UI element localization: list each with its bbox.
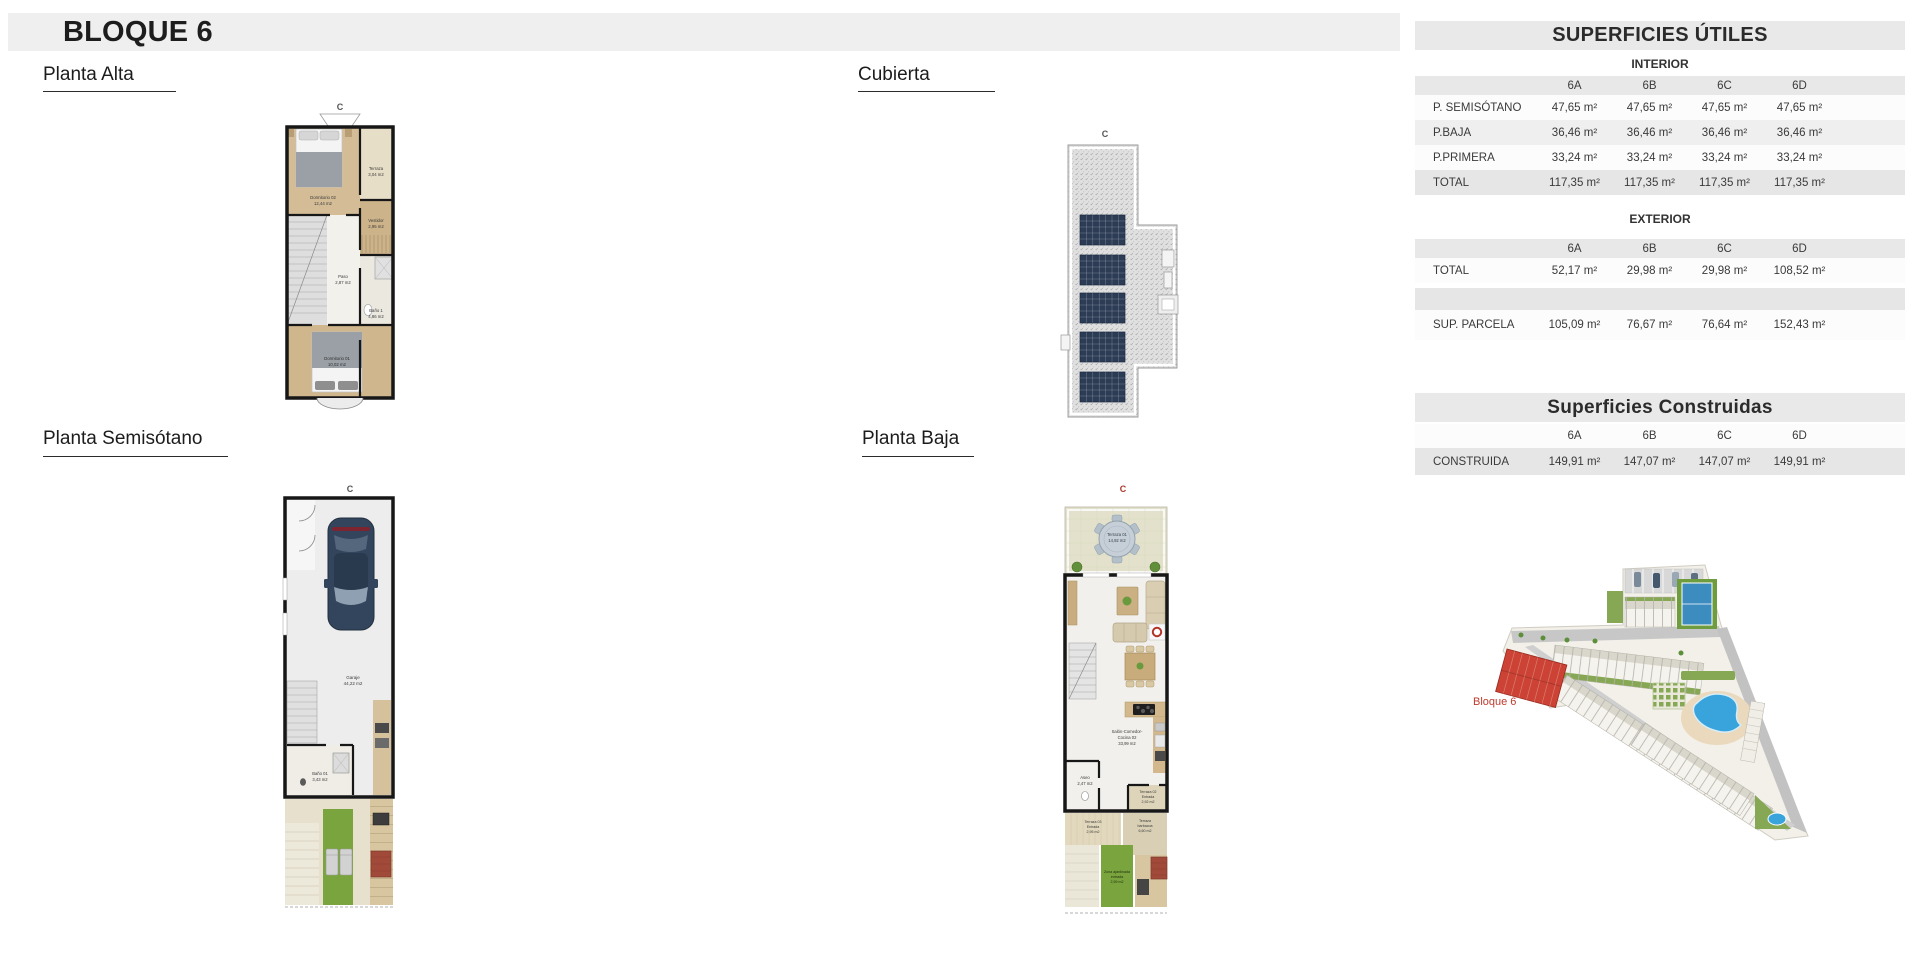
- col-header: 6D: [1762, 430, 1837, 442]
- table-row: P.BAJA 36,46 m² 36,46 m² 36,46 m² 36,46 …: [1415, 120, 1905, 145]
- tree: [1565, 638, 1570, 643]
- room-label: Entrada: [1142, 795, 1155, 799]
- orientation-mark: C: [347, 484, 354, 494]
- cell: 36,46 m²: [1537, 127, 1612, 139]
- cell: 152,43 m²: [1762, 319, 1837, 331]
- grill: [373, 813, 389, 825]
- room-label: Terraza 03: [1085, 820, 1102, 824]
- garden-parterre: [1653, 683, 1685, 709]
- cell: 33,24 m²: [1762, 152, 1837, 164]
- section-label-planta-alta: Planta Alta: [43, 64, 134, 86]
- cell: 47,65 m²: [1537, 102, 1612, 114]
- cell: 147,07 m²: [1687, 456, 1762, 468]
- col-header: 6D: [1762, 80, 1837, 92]
- utiles-title: SUPERFICIES ÚTILES: [1552, 24, 1767, 47]
- col-header: 6A: [1537, 243, 1612, 255]
- room-area: 3,43 m2: [312, 777, 328, 782]
- sofa: [1146, 581, 1165, 629]
- room-label: Baño 01: [312, 771, 328, 776]
- col-header: 6B: [1612, 430, 1687, 442]
- sofa: [1113, 623, 1147, 642]
- col-header: 6D: [1762, 243, 1837, 255]
- spacer-band: [1415, 288, 1905, 310]
- room-label: Terraza: [369, 166, 384, 171]
- row-label: P.BAJA: [1415, 127, 1537, 139]
- interior-label: INTERIOR: [1415, 57, 1905, 71]
- room-label: Vestidor: [368, 218, 384, 223]
- room-area: 33,99 m2: [1118, 741, 1136, 746]
- table-row: P. SEMISÓTANO 47,65 m² 47,65 m² 47,65 m²…: [1415, 95, 1905, 120]
- exterior-header-row: 6A 6B 6C 6D: [1415, 239, 1905, 258]
- cell: 36,46 m²: [1687, 127, 1762, 139]
- cell: 47,65 m²: [1687, 102, 1762, 114]
- room-area: 2,95 m2: [1087, 830, 1100, 834]
- room-label: Terraza: [1139, 819, 1151, 823]
- cell: 76,67 m²: [1612, 319, 1687, 331]
- col-header: 6C: [1687, 243, 1762, 255]
- green-area: [1607, 591, 1623, 623]
- bbq: [1151, 857, 1167, 879]
- toilet: [1082, 792, 1089, 801]
- car-top-view: [324, 518, 378, 630]
- underline: [858, 91, 995, 92]
- bloque-6-label: Bloque 6: [1473, 696, 1516, 708]
- solar-panel: [1080, 293, 1125, 323]
- col-header: 6B: [1612, 80, 1687, 92]
- sunbed: [326, 849, 338, 875]
- room-label: Zona ajardinada: [1104, 870, 1130, 874]
- row-label: P.PRIMERA: [1415, 152, 1537, 164]
- tree: [1593, 639, 1598, 644]
- table-row: P.PRIMERA 33,24 m² 33,24 m² 33,24 m² 33,…: [1415, 145, 1905, 170]
- underline: [43, 456, 228, 457]
- room-label: barbacoa: [1138, 824, 1153, 828]
- cell: 149,91 m²: [1762, 456, 1837, 468]
- col-header: 6B: [1612, 243, 1687, 255]
- plant: [1123, 597, 1132, 606]
- row-label: P. SEMISÓTANO: [1415, 102, 1537, 114]
- section-label-planta-semisotano: Planta Semisótano: [43, 428, 203, 450]
- orientation-mark: C: [1120, 484, 1127, 494]
- tree: [1679, 651, 1684, 656]
- cell: 29,98 m²: [1687, 265, 1762, 277]
- sideboard: [1068, 581, 1077, 625]
- cubierta-roofplan: C: [1055, 128, 1185, 430]
- planta-semisotano-floorplan: C: [278, 483, 403, 915]
- cell: 47,65 m²: [1612, 102, 1687, 114]
- tree: [1541, 636, 1546, 641]
- orientation-mark: C: [337, 102, 344, 112]
- orientation-mark: C: [1102, 129, 1109, 139]
- cell: 147,07 m²: [1612, 456, 1687, 468]
- room-label: Dormitorio 01: [324, 356, 350, 361]
- row-label: TOTAL: [1415, 177, 1537, 189]
- table-row-construida: CONSTRUIDA 149,91 m² 147,07 m² 147,07 m²…: [1415, 448, 1905, 475]
- planta-alta-floorplan: C: [282, 100, 398, 415]
- cell: 105,09 m²: [1537, 319, 1612, 331]
- room-area: 4,86 m2: [368, 314, 384, 319]
- sink: [1155, 723, 1165, 731]
- solar-panel: [1080, 372, 1125, 402]
- room-area: 12,44 m2: [314, 201, 333, 206]
- cell: 36,46 m²: [1762, 127, 1837, 139]
- room-label: entrada: [1111, 875, 1123, 879]
- plan-sheet: BLOQUE 6 Planta Alta Cubierta Planta Sem…: [0, 0, 1920, 954]
- cell: 108,52 m²: [1762, 265, 1837, 277]
- cell: 52,17 m²: [1537, 265, 1612, 277]
- col-header: 6C: [1687, 80, 1762, 92]
- rooftop-unit: [1162, 250, 1174, 267]
- plant: [1072, 562, 1082, 572]
- table-row-total: TOTAL 117,35 m² 117,35 m² 117,35 m² 117,…: [1415, 170, 1905, 195]
- cell: 117,35 m²: [1537, 177, 1612, 189]
- table-row-parcela: SUP. PARCELA 105,09 m² 76,67 m² 76,64 m²…: [1415, 310, 1905, 340]
- site-plan: Bloque 6: [1455, 533, 1835, 868]
- utiles-title-band: SUPERFICIES ÚTILES: [1415, 21, 1905, 50]
- housing-row: [1625, 597, 1675, 627]
- cell: 33,24 m²: [1687, 152, 1762, 164]
- bed: [287, 129, 352, 187]
- underline: [862, 456, 974, 457]
- row-label: TOTAL: [1415, 265, 1537, 277]
- row-label: CONSTRUIDA: [1415, 456, 1537, 468]
- cell: 33,24 m²: [1612, 152, 1687, 164]
- room-label: Salón-Comedor-: [1112, 729, 1143, 734]
- room-area: 2,87 m2: [335, 280, 351, 285]
- room-area: 10,02 m2: [328, 362, 347, 367]
- room-label: Paso: [338, 274, 348, 279]
- cell: 149,91 m²: [1537, 456, 1612, 468]
- underline: [43, 91, 176, 92]
- section-label-planta-baja: Planta Baja: [862, 428, 959, 450]
- entry-porch: [320, 114, 360, 126]
- terrace: [1065, 813, 1121, 845]
- solar-panel: [1080, 255, 1125, 285]
- cell: 117,35 m²: [1612, 177, 1687, 189]
- cell: 76,64 m²: [1687, 319, 1762, 331]
- room-label: Dormitorio 02: [310, 195, 336, 200]
- plant: [1150, 562, 1160, 572]
- toilet: [300, 778, 306, 786]
- interior-header-row: 6A 6B 6C 6D: [1415, 76, 1905, 95]
- cell: 36,46 m²: [1612, 127, 1687, 139]
- pool: [1768, 813, 1786, 825]
- col-header: 6C: [1687, 430, 1762, 442]
- room-area: 2,92 m2: [1142, 800, 1155, 804]
- green-area: [1681, 671, 1735, 680]
- balcony: [317, 398, 363, 409]
- construidas-title: Superficies Construidas: [1547, 397, 1772, 419]
- page-title: BLOQUE 6: [8, 16, 213, 49]
- cell: 33,24 m²: [1537, 152, 1612, 164]
- solar-panel: [1080, 332, 1125, 362]
- room-label: Garaje: [346, 675, 360, 680]
- decor-ring: [1153, 628, 1161, 636]
- cell: 117,35 m²: [1687, 177, 1762, 189]
- tree: [1519, 633, 1524, 638]
- room-label: Baño 1: [369, 308, 383, 313]
- grill: [1137, 879, 1149, 895]
- cell: 29,98 m²: [1612, 265, 1687, 277]
- room-label: Aseo: [1080, 775, 1090, 780]
- solar-panel: [1080, 215, 1125, 245]
- room-label: Terraza 02: [1140, 790, 1157, 794]
- construidas-header-row: 6A 6B 6C 6D: [1415, 424, 1905, 448]
- room-area: 2,47 m2: [1077, 781, 1093, 786]
- exterior-label: EXTERIOR: [1415, 212, 1905, 226]
- room-area: 2,95 m2: [368, 224, 384, 229]
- planta-baja-floorplan: C: [1053, 483, 1185, 919]
- col-header: 6A: [1537, 80, 1612, 92]
- room-label: Entrada: [1087, 825, 1100, 829]
- cell: 117,35 m²: [1762, 177, 1837, 189]
- car: [1653, 573, 1660, 588]
- dining-table: [1125, 646, 1155, 687]
- room-area: 2,59 m2: [1111, 880, 1124, 884]
- room-area: 6,60 m2: [1139, 829, 1152, 833]
- room-area: 14,92 m2: [1108, 538, 1126, 543]
- section-label-cubierta: Cubierta: [858, 64, 930, 86]
- room-area: 44,22 m2: [344, 681, 363, 686]
- sunbed: [340, 849, 352, 875]
- car: [1634, 572, 1641, 587]
- construidas-title-band: Superficies Construidas: [1415, 393, 1905, 422]
- table-row-total: TOTAL 52,17 m² 29,98 m² 29,98 m² 108,52 …: [1415, 258, 1905, 283]
- room-area: 3,04 m2: [368, 172, 384, 177]
- room-label: Terraza 01: [1107, 532, 1127, 537]
- page-header-band: BLOQUE 6: [8, 13, 1400, 51]
- rooftop-unit: [1061, 335, 1070, 350]
- rooftop-unit: [1164, 272, 1172, 288]
- row-label: SUP. PARCELA: [1415, 319, 1537, 331]
- cell: 47,65 m²: [1762, 102, 1837, 114]
- stairs: [287, 681, 317, 743]
- col-header: 6A: [1537, 430, 1612, 442]
- room-label: Cocina 02: [1118, 735, 1138, 740]
